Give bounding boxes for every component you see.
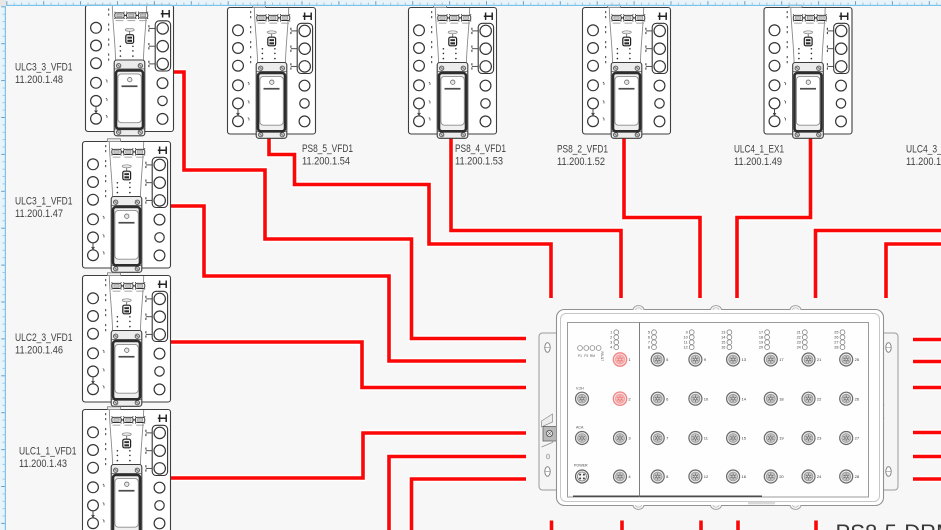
svg-text:17: 17	[779, 357, 784, 362]
svg-text:19: 19	[759, 341, 763, 345]
svg-text:12: 12	[704, 474, 709, 479]
svg-text:11.200.1.43: 11.200.1.43	[19, 458, 67, 470]
svg-text:19: 19	[779, 436, 784, 441]
svg-text:13: 13	[742, 357, 747, 362]
svg-text:11.200.1.52: 11.200.1.52	[557, 156, 605, 168]
svg-text:18: 18	[759, 336, 763, 340]
svg-text:10: 10	[683, 336, 687, 340]
svg-text:5: 5	[648, 331, 650, 335]
svg-text:26: 26	[855, 396, 860, 401]
svg-text:PS8_4_VFD1: PS8_4_VFD1	[455, 143, 506, 155]
svg-text:V.2H: V.2H	[576, 387, 584, 391]
svg-text:6: 6	[648, 336, 650, 340]
svg-text:POWER: POWER	[574, 464, 588, 468]
svg-text:11.200.1.54: 11.200.1.54	[302, 155, 350, 167]
svg-text:22: 22	[797, 336, 801, 340]
svg-text:21: 21	[817, 357, 822, 362]
svg-text:ULC4_1_EX1: ULC4_1_EX1	[734, 144, 784, 156]
svg-text:FAULT: FAULT	[600, 352, 604, 362]
svg-text:28: 28	[855, 474, 860, 479]
svg-text:9: 9	[686, 331, 688, 335]
svg-text:28: 28	[834, 346, 838, 350]
svg-text:27: 27	[855, 436, 860, 441]
svg-text:7: 7	[648, 341, 650, 345]
svg-text:11: 11	[684, 341, 688, 345]
svg-text:10: 10	[704, 396, 709, 401]
svg-text:24: 24	[797, 346, 801, 350]
svg-text:27: 27	[834, 341, 838, 345]
svg-text:11.200.1.47: 11.200.1.47	[15, 208, 63, 220]
svg-text:16: 16	[721, 346, 725, 350]
svg-text:13: 13	[721, 331, 725, 335]
svg-text:20: 20	[759, 346, 763, 350]
svg-text:11.200.1.46: 11.200.1.46	[15, 344, 63, 356]
svg-text:25: 25	[834, 331, 838, 335]
svg-text:11.200.1.53: 11.200.1.53	[455, 155, 503, 167]
svg-text:1: 1	[610, 331, 612, 335]
svg-text:ULC3_1_VFD1: ULC3_1_VFD1	[15, 195, 73, 207]
svg-text:11.200.1.48: 11.200.1.48	[15, 74, 63, 86]
svg-text:23: 23	[797, 341, 801, 345]
svg-text:PS8_5_VFD1: PS8_5_VFD1	[302, 143, 353, 155]
svg-text:2: 2	[610, 336, 612, 340]
svg-text:ULC2_3_VFD1: ULC2_3_VFD1	[15, 332, 73, 344]
svg-text:15: 15	[721, 341, 725, 345]
svg-text:8: 8	[648, 346, 650, 350]
svg-text:25: 25	[855, 357, 860, 362]
svg-text:18: 18	[779, 396, 784, 401]
svg-text:11.200.1.50: 11.200.1.50	[906, 156, 941, 168]
svg-text:23: 23	[817, 436, 822, 441]
svg-text:ULC4_3_VFD1: ULC4_3_VFD1	[906, 144, 941, 156]
svg-text:11.200.1.49: 11.200.1.49	[734, 156, 782, 168]
svg-text:12: 12	[683, 346, 687, 350]
svg-text:20: 20	[779, 474, 784, 479]
svg-text:3: 3	[610, 341, 612, 345]
svg-text:26: 26	[834, 336, 838, 340]
svg-text:15: 15	[742, 436, 747, 441]
svg-text:ACA: ACA	[576, 426, 584, 430]
svg-text:4: 4	[610, 346, 612, 350]
svg-text:24: 24	[817, 474, 822, 479]
svg-text:17: 17	[759, 331, 763, 335]
svg-text:22: 22	[817, 396, 822, 401]
svg-text:16: 16	[742, 474, 747, 479]
svg-text:PS8_2_VFD1: PS8_2_VFD1	[557, 144, 608, 156]
svg-text:ULC3_3_VFD1: ULC3_3_VFD1	[15, 61, 73, 73]
svg-text:RM: RM	[590, 354, 595, 358]
svg-text:14: 14	[721, 336, 725, 340]
svg-text:P2: P2	[584, 354, 588, 358]
svg-text:PS8-5-DRM: PS8-5-DRM	[836, 520, 941, 530]
svg-text:21: 21	[797, 331, 801, 335]
svg-text:14: 14	[742, 396, 747, 401]
svg-text:P1: P1	[578, 354, 582, 358]
svg-text:ULC1_1_VFD1: ULC1_1_VFD1	[19, 446, 77, 458]
